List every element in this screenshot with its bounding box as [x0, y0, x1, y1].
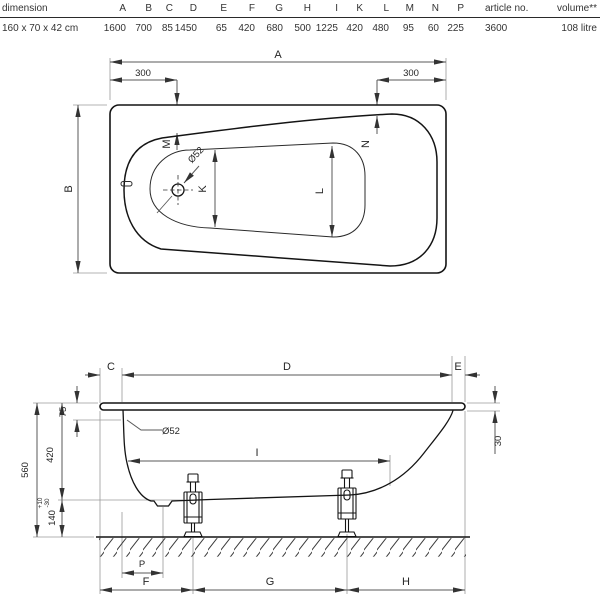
- dim-label-p: P: [139, 559, 145, 570]
- left-foot-base: [184, 532, 202, 537]
- dim-label-e: E: [454, 361, 461, 373]
- dim-label-a: A: [274, 49, 282, 61]
- tolerance-plus-label: +10: [37, 497, 44, 508]
- right-foot-bolt-head: [342, 470, 352, 478]
- dim-label-420: 420: [45, 447, 56, 463]
- technical-drawing: A 300 300 B M N K L Ø52: [0, 0, 600, 600]
- dim-label-l: L: [314, 188, 326, 194]
- dim-label-h: H: [402, 576, 410, 588]
- dim-label-b: B: [63, 185, 75, 192]
- tub-outer-edge-top: [110, 105, 446, 273]
- top-view-extension-lines: [73, 58, 446, 273]
- dim-label-g: G: [266, 576, 275, 588]
- top-view-drawing: A 300 300 B M N K L Ø52: [63, 49, 446, 273]
- dim-label-140: 140: [47, 510, 58, 526]
- side-view-extension-lines: [33, 356, 500, 594]
- drain: [157, 166, 199, 213]
- dim-label-k: K: [197, 185, 209, 193]
- drain-diameter-label: Ø52: [186, 145, 206, 166]
- drain-leader-arrow: [184, 166, 199, 183]
- dim-label-i: I: [255, 447, 258, 459]
- tub-profile: [123, 410, 453, 506]
- right-foot: [338, 470, 356, 537]
- floor-hatching: [99, 538, 466, 557]
- overflow-slot: [121, 182, 132, 187]
- dim-label-c: C: [107, 361, 115, 373]
- tub-rim-section: [100, 403, 465, 410]
- drain-leader-tail: [157, 196, 172, 213]
- left-foot-slot: [190, 494, 196, 504]
- side-view-drawing: C D E 75 420 560 140 +10 -30 30 Ø52 I P …: [20, 356, 504, 594]
- dim-label-m: M: [161, 139, 173, 148]
- basin-outline: [150, 143, 365, 237]
- dim-label-30: 30: [493, 436, 504, 447]
- bathtub-spec-sheet: dimension A B C D E F G H I K L M N P ar…: [0, 0, 600, 600]
- dim-label-d: D: [283, 361, 291, 373]
- dim-label-f: F: [143, 576, 150, 588]
- left-foot-bolt-head: [188, 474, 198, 482]
- dim-label-75: 75: [58, 407, 69, 418]
- dim-label-300-left: 300: [135, 68, 151, 79]
- dim-label-300-right: 300: [403, 68, 419, 79]
- tolerance-minus-label: -30: [44, 498, 51, 508]
- overflow-diameter-label: Ø52: [162, 426, 180, 437]
- dim-label-560: 560: [20, 462, 31, 478]
- overflow-leader: [127, 420, 162, 430]
- dim-label-n: N: [360, 140, 372, 148]
- left-foot: [184, 474, 202, 537]
